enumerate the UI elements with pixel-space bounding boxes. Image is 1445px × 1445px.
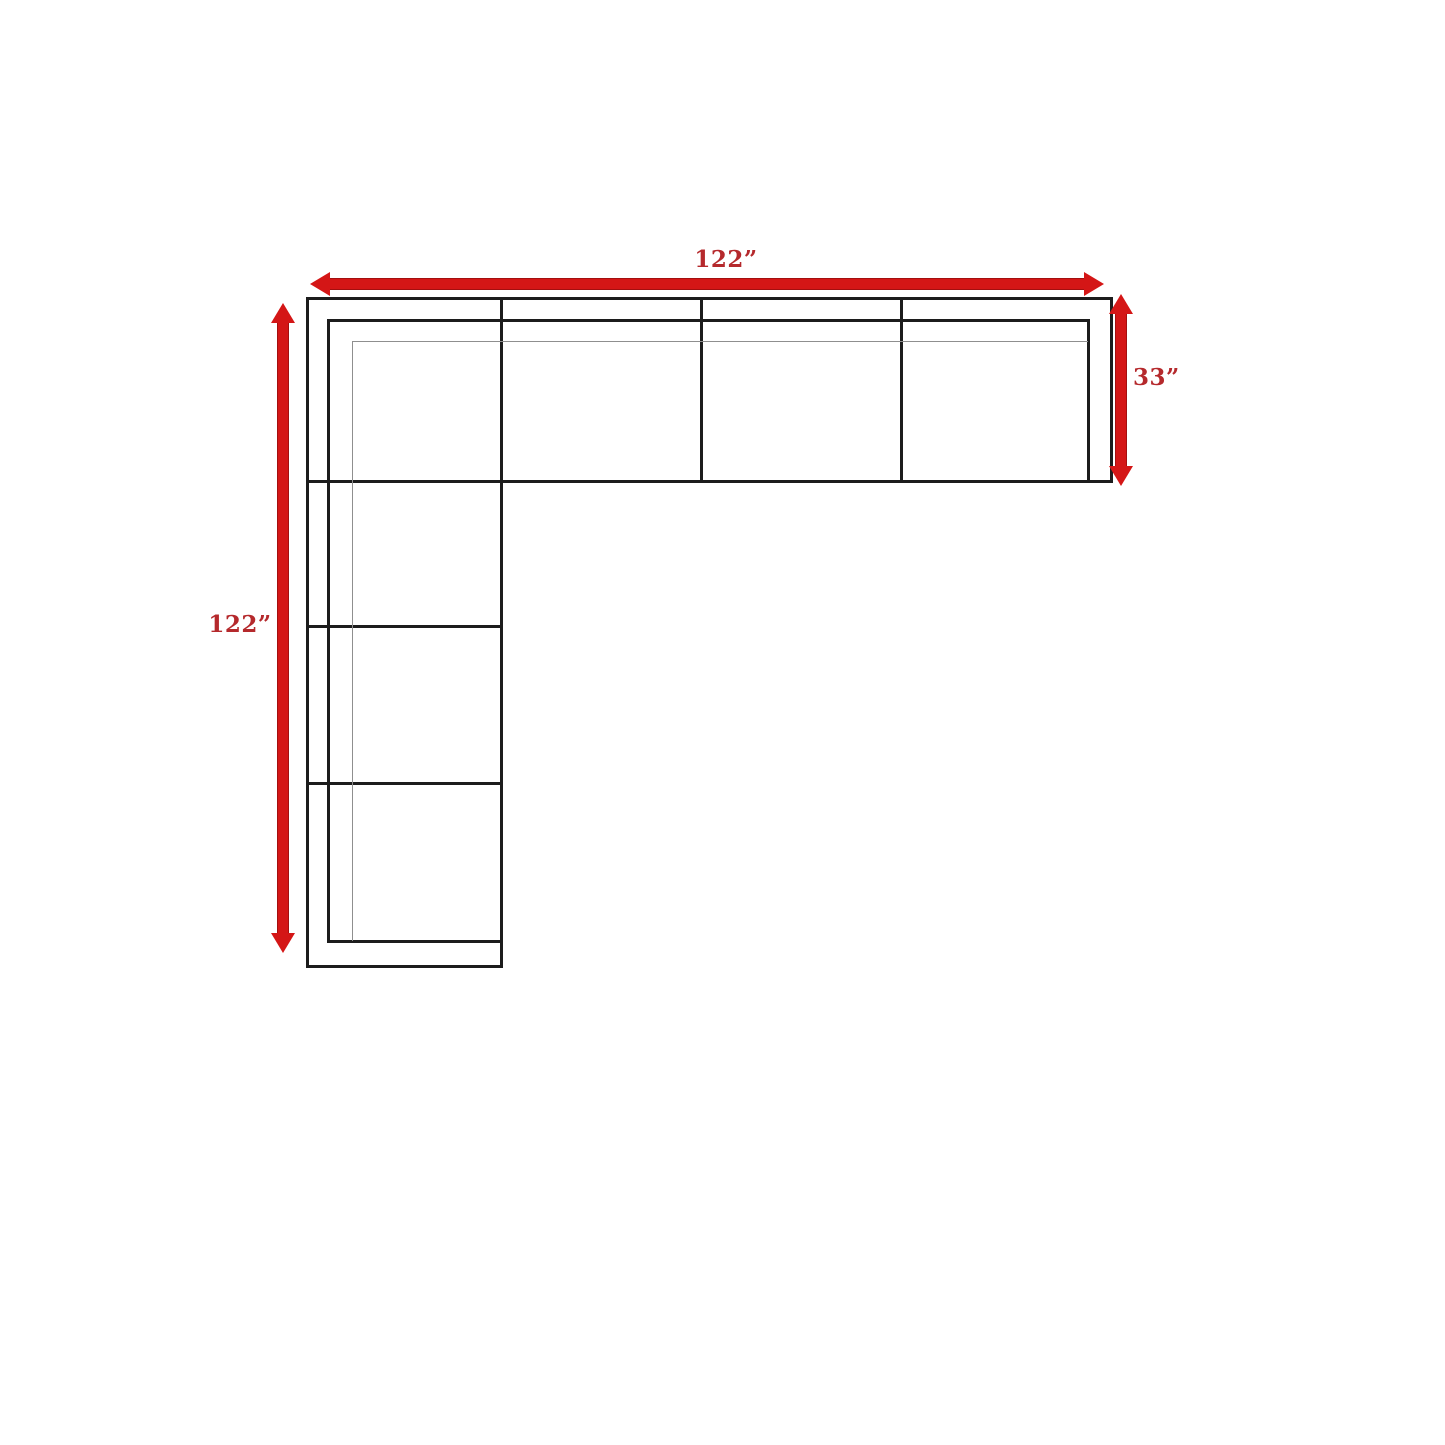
top-width-arrow <box>310 272 1104 296</box>
sofa-top-row-front-edge <box>306 480 1113 483</box>
right-depth-arrow <box>1109 294 1133 486</box>
arrowhead-up-icon <box>271 303 295 323</box>
seat-guide-line-horizontal <box>352 341 1088 342</box>
seat-guide-line-vertical <box>352 341 353 941</box>
top-width-label: 122” <box>666 248 786 271</box>
left-height-label: 122” <box>180 613 300 636</box>
arrowhead-down-icon <box>1109 466 1133 486</box>
right-depth-label: 33” <box>1133 366 1180 389</box>
seat-divider-left-2 <box>306 782 503 785</box>
sofa-dimension-diagram: 122” 33” 122” <box>0 0 1445 1445</box>
arrowhead-down-icon <box>271 933 295 953</box>
arrowhead-right-icon <box>1084 272 1104 296</box>
sofa-outer-bottom-edge <box>306 965 503 968</box>
right-depth-arrow-bar <box>1115 314 1127 466</box>
inner-back-left-edge <box>327 319 330 943</box>
seat-divider-top-2 <box>900 297 903 483</box>
inner-arm-bottom-edge <box>327 940 503 943</box>
arrowhead-left-icon <box>310 272 330 296</box>
inner-arm-right-edge <box>1087 319 1090 483</box>
sofa-left-column-right-edge <box>500 297 503 968</box>
inner-back-top-edge <box>327 319 1090 322</box>
seat-divider-top-1 <box>700 297 703 483</box>
sofa-outer-left-edge <box>306 297 309 968</box>
sofa-outer-top-edge <box>306 297 1113 300</box>
top-width-arrow-bar <box>330 278 1084 290</box>
arrowhead-up-icon <box>1109 294 1133 314</box>
seat-divider-left-1 <box>306 625 503 628</box>
